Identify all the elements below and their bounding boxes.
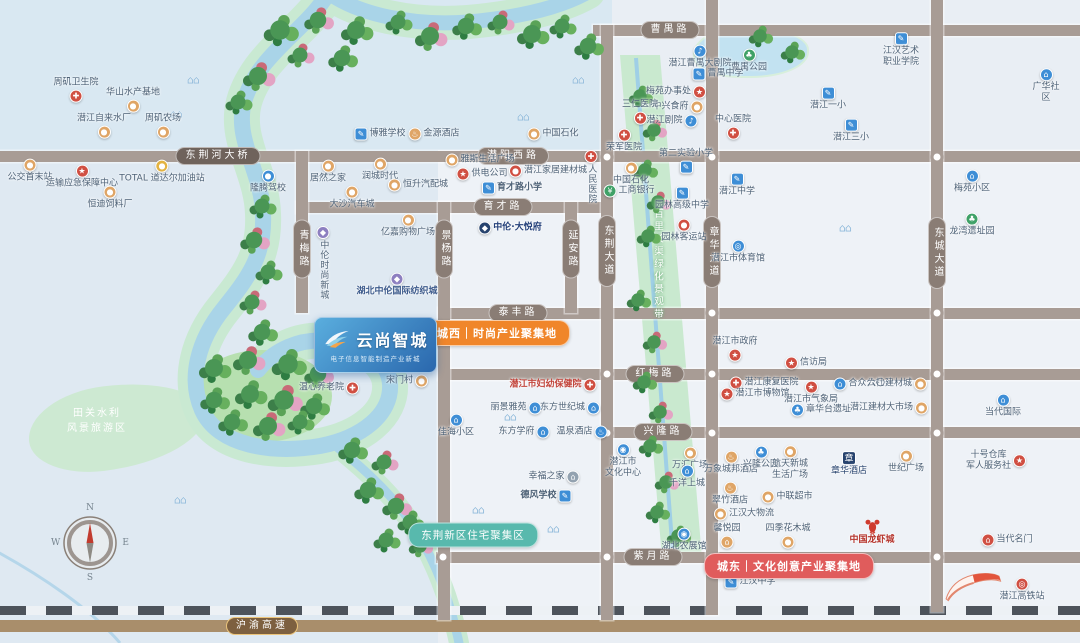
scenic-area-label: 田关水利 风景旅游区	[67, 406, 127, 436]
high-speed-train-illustration	[942, 567, 1003, 607]
brand-bird-icon	[322, 328, 352, 350]
shop-icon: ●	[914, 378, 927, 391]
school-icon: ✎	[844, 119, 857, 132]
shop-icon: ●	[103, 186, 116, 199]
tree-cluster	[270, 20, 290, 40]
bus-icon: ●	[677, 219, 690, 232]
poi: 温心养老院✚	[299, 382, 359, 395]
poi: ⌂梅苑小区	[954, 170, 990, 195]
tree-cluster	[347, 21, 365, 39]
shop-icon: ●	[761, 491, 774, 504]
poi: ✚荣军医院	[606, 129, 642, 154]
poi-label: 供电公司	[471, 169, 507, 180]
poi: 东方世纪城⌂	[540, 402, 600, 415]
poi: ●园林客运站	[661, 219, 706, 244]
poi-label: 恒升汽配城	[403, 180, 448, 191]
hotel-icon: ♨	[723, 482, 736, 495]
buildings-icon: ⌂⌂	[517, 111, 529, 124]
poi: 章章华酒店	[831, 451, 867, 477]
highway-road	[0, 620, 1080, 632]
gov-icon: ★	[720, 388, 733, 401]
project-name: 云尚智城	[356, 327, 428, 351]
hotel-icon: ♨	[724, 451, 737, 464]
road-name-label: 兴隆路	[634, 423, 693, 441]
theater-icon: ♪	[693, 45, 706, 58]
hospital-icon: ✚	[585, 150, 598, 163]
poi-label: 工商银行	[618, 186, 654, 197]
home-icon: ⌂	[720, 535, 733, 548]
poi-label: 温泉酒店	[556, 427, 592, 438]
poi: ♪潜江曹禺大剧院	[668, 45, 731, 70]
poi: ●大沙汽车城	[329, 186, 374, 211]
tree-cluster	[388, 498, 405, 515]
tree-cluster	[643, 439, 657, 453]
banner-residential-area: 东荆新区住宅聚集区	[408, 523, 538, 548]
brand-icon: ◆	[390, 273, 403, 286]
road	[601, 25, 613, 620]
location-map: 田关水利 风景旅游区 百里长渠绿化景观带 城西｜时尚产业聚集地 城东｜文化创意产…	[0, 0, 1080, 643]
tree-cluster	[379, 533, 394, 548]
poi-label: 中心医院	[715, 115, 751, 126]
poi: ●中国石化	[613, 162, 649, 187]
poi-label: 园林高级中学	[655, 201, 709, 212]
poi: ¥工商银行	[603, 185, 654, 198]
hospital-icon: ✚	[69, 89, 82, 102]
tree-cluster	[255, 199, 270, 214]
poi-label: 东方学府	[498, 427, 534, 438]
poi-label: 潜江建材大市场	[850, 403, 913, 414]
tree-cluster	[653, 405, 667, 419]
poi-label: 周矶卫生院	[53, 78, 98, 89]
tree-cluster	[249, 67, 267, 85]
poi-label: 育才路小学	[497, 183, 542, 194]
poi: ●居然之家	[310, 160, 346, 185]
home-icon: ⌂	[449, 414, 462, 427]
poi: ◉潜江市 文化中心	[605, 443, 641, 479]
road-junction	[931, 427, 944, 440]
gov-icon: ★	[75, 165, 88, 178]
poi-label: 信访局	[800, 358, 827, 369]
poi: ⌂广华社区	[1029, 68, 1063, 104]
poi: ✎曹禺中学	[692, 68, 743, 81]
poi-label: 江汉大物流	[729, 509, 774, 520]
railway-line	[0, 606, 1080, 615]
poi: ◉湖北农展馆	[661, 528, 706, 553]
banner-east-industry: 城东｜文化创意产业聚集地	[704, 553, 874, 579]
tree-cluster	[391, 15, 406, 30]
buildings-icon: ⌂⌂	[839, 222, 851, 235]
poi-label: 幸福之家	[528, 472, 564, 483]
poi-label: 潜江自来水厂	[77, 114, 131, 125]
culture-icon: ◉	[616, 443, 629, 456]
poi-label: 华山水产基地	[106, 88, 160, 99]
school-icon: ✎	[730, 173, 743, 186]
bus-icon: ●	[23, 159, 36, 172]
shop-icon: ●	[783, 445, 796, 458]
tree-cluster	[523, 25, 541, 43]
road-junction	[931, 151, 944, 164]
poi: 丽景雅苑⌂	[490, 402, 541, 415]
poi: ◆湖北中伦国际纺织城	[356, 273, 437, 298]
poi-label: 第二实验小学	[659, 149, 713, 160]
gov-icon: ★	[456, 168, 469, 181]
poi: ●航天新城 生活广场	[772, 445, 808, 481]
poi: 中国龙虾城	[849, 518, 894, 546]
poi: ♨金源酒店	[408, 128, 459, 141]
poi: 潜江建材大市场●	[850, 402, 928, 415]
poi: ✎潜江中学	[719, 173, 755, 198]
home-icon: ⌂	[587, 402, 600, 415]
poi: ●TOTAL 道达尔加油站	[119, 160, 204, 185]
shop-icon: ●	[388, 179, 401, 192]
poi-label: 居然之家	[310, 174, 346, 185]
poi: ◆中伦时尚新城	[317, 226, 330, 300]
gov-icon: ★	[693, 86, 706, 99]
road-junction	[601, 551, 614, 564]
poi: 十号仓库 军人服务社★	[966, 450, 1026, 472]
poi-label: 潜江三小	[833, 133, 869, 144]
poi-label: 世纪广场	[888, 464, 924, 475]
tree-cluster	[785, 45, 799, 59]
poi-label: 潜江市 文化中心	[605, 457, 641, 479]
road-name-label: 延安路	[562, 220, 580, 279]
poi-label: 当代名门	[996, 535, 1032, 546]
gov-icon: ★	[1013, 455, 1026, 468]
school-icon: ✎	[821, 87, 834, 100]
poi: ⌂佳海小区	[438, 414, 474, 439]
school-icon: ✎	[559, 490, 572, 503]
poi: ●中联超市	[761, 491, 812, 504]
fuel-icon: ●	[624, 162, 637, 175]
poi-label: 馨悦园	[713, 524, 740, 535]
home-icon: ⌂	[981, 534, 994, 547]
poi-label: 梅苑办事处	[646, 87, 691, 98]
poi: ✎育才路小学	[482, 182, 542, 195]
road-name-label: 育才路	[474, 198, 533, 216]
poi-label: 大沙汽车城	[329, 200, 374, 211]
tree-cluster	[647, 335, 661, 349]
poi: ♣章华台遗址	[791, 404, 851, 417]
road-junction	[437, 551, 450, 564]
shop-icon: ●	[345, 186, 358, 199]
poi-label: 龙湾遗址园	[949, 227, 994, 238]
tree-cluster	[637, 375, 651, 389]
poi-label: 十号仓库 军人服务社	[966, 450, 1011, 472]
poi-label: 潜江高铁站	[999, 592, 1044, 603]
poi-label: 江汉艺术 职业学院	[883, 46, 919, 68]
park-icon: ♣	[965, 213, 978, 226]
school-icon: ✎	[675, 187, 688, 200]
poi-label: 宋门村	[386, 376, 413, 387]
poi: ⌂当代名门	[981, 534, 1032, 547]
poi-label: 四季花木城	[765, 524, 810, 535]
poi: ◆中伦·大悦府	[478, 222, 541, 235]
poi: 周矶卫生院✚	[53, 78, 98, 103]
school-icon: ✎	[679, 160, 692, 173]
road-name-label: 东荆大道	[598, 215, 616, 287]
compass-south-label: S	[87, 573, 93, 583]
poi-label: 潜江一小	[810, 101, 846, 112]
poi: ◎潜江高铁站	[999, 578, 1044, 603]
tree-cluster	[246, 232, 263, 249]
tree-cluster	[306, 398, 323, 415]
poi-label: 曹禺中学	[707, 69, 743, 80]
poi: ✚人民医院	[585, 150, 598, 204]
tree-cluster	[274, 390, 294, 410]
poi: ★供电公司	[456, 168, 507, 181]
poi-label: 湖北中伦国际纺织城	[356, 287, 437, 298]
poi: ●恒迪饲料厂	[87, 186, 132, 211]
tree-cluster	[753, 29, 767, 43]
road-name-label: 青梅路	[293, 220, 311, 279]
road-junction	[931, 551, 944, 564]
poi: ●中国石化	[527, 128, 578, 141]
poi: ♣龙湾遗址园	[949, 213, 994, 238]
compass-north-label: N	[86, 503, 94, 513]
poi: ♨翠竹酒店	[712, 482, 748, 507]
poi: 潜江市妇幼保健院✚	[509, 379, 596, 392]
park-icon: ♣	[754, 446, 767, 459]
poi: 德风学校✎	[520, 490, 571, 503]
tree-cluster	[205, 359, 223, 377]
poi-label: 园林客运站	[661, 233, 706, 244]
tree-cluster	[493, 15, 508, 30]
poi: 三仁医院✚	[622, 100, 658, 125]
tree-cluster	[278, 354, 298, 374]
hotel-icon: ♨	[595, 426, 608, 439]
buildings-icon: ⌂⌂	[472, 504, 484, 517]
buildings-icon: ⌂⌂	[547, 523, 559, 536]
hospital-icon: ✚	[584, 379, 597, 392]
poi-label: 中伦·大悦府	[493, 223, 541, 234]
road-junction	[931, 307, 944, 320]
hospital-icon: ✚	[726, 126, 739, 139]
poi: 华山水产基地●	[106, 88, 160, 113]
compass-west-label: W	[51, 538, 60, 548]
tree-cluster	[580, 38, 597, 55]
poi-label: 梅苑小区	[954, 184, 990, 195]
poi: 东方学府⌂	[498, 426, 549, 439]
poi-label: 雅斯生活广场	[460, 155, 514, 166]
home-icon: ⌂	[567, 471, 580, 484]
poi: ★信访局	[785, 357, 827, 370]
shop-icon: ●	[714, 508, 727, 521]
home-icon: ⌂	[996, 394, 1009, 407]
poi-label: 中伦时尚新城	[318, 240, 329, 300]
shop-icon: ●	[97, 125, 110, 138]
school-icon: ✎	[354, 128, 367, 141]
shop-icon: ●	[691, 101, 704, 114]
poi: 中兴食府●	[652, 101, 703, 114]
poi: ●江汉大物流	[714, 508, 774, 521]
poi-label: 佳海小区	[438, 428, 474, 439]
poi-label: 东方世纪城	[540, 403, 585, 414]
poi: ★潜江市博物馆	[720, 388, 789, 401]
poi-label: 章华酒店	[831, 466, 867, 477]
poi: ★潜江市气象局	[784, 381, 838, 406]
home-icon: ⌂	[965, 170, 978, 183]
poi: 梅苑办事处★	[646, 86, 706, 99]
brand-icon: ◆	[317, 226, 330, 239]
road-junction	[706, 427, 719, 440]
compass-east-label: E	[122, 538, 129, 548]
poi: ●雅斯生活广场	[445, 154, 514, 167]
road-name-label: 红梅路	[626, 365, 685, 383]
shop-icon: ●	[401, 214, 414, 227]
poi: 第二实验小学✎	[659, 149, 713, 174]
gov-icon: ★	[785, 357, 798, 370]
lobster-icon	[863, 518, 881, 534]
poi: ✎园林高级中学	[655, 187, 709, 212]
poi-label: 潜江市政府	[712, 337, 757, 348]
poi-label: 航天新城 生活广场	[772, 459, 808, 481]
shop-icon: ●	[415, 375, 428, 388]
home-icon: ⌂	[1040, 68, 1053, 81]
poi: 幸福之家⌂	[528, 471, 579, 484]
tree-cluster	[259, 417, 277, 435]
poi-label: TOTAL 道达尔加油站	[119, 174, 204, 185]
poi-label: 德风学校	[520, 491, 556, 502]
buildings-icon: ⌂⌂	[174, 494, 186, 507]
road-name-label: 东城大道	[928, 217, 946, 289]
school-icon: ✎	[482, 182, 495, 195]
poi-label: 人民医院	[586, 164, 597, 204]
tree-cluster	[344, 442, 361, 459]
shop-icon: ●	[509, 165, 522, 178]
poi-label: 翠竹酒店	[712, 496, 748, 507]
poi: ✎博雅学校	[354, 128, 405, 141]
project-tagline: 电子信息智能制造产业新城	[331, 353, 421, 363]
hospital-icon: ✚	[617, 129, 630, 142]
tree-cluster	[334, 50, 351, 67]
poi: ✎江汉艺术 职业学院	[883, 32, 919, 68]
park-icon: ♣	[791, 404, 804, 417]
tree-cluster	[641, 229, 655, 243]
tree-cluster	[377, 455, 392, 470]
poi: 四季花木城●	[765, 524, 810, 549]
highway-name-label: 沪渝高速	[226, 617, 298, 635]
poi: ●恒升汽配城	[388, 179, 448, 192]
poi-label: 荣军医院	[606, 143, 642, 154]
shop-icon: ●	[445, 154, 458, 167]
hotel-icon: ♨	[408, 128, 421, 141]
tree-cluster	[254, 324, 271, 341]
home-icon: ⌂	[680, 465, 693, 478]
tree-cluster	[555, 19, 570, 34]
tree-cluster	[293, 48, 308, 63]
poi-label: 章华台遗址	[806, 405, 851, 416]
poi: ●潜江家居建材城	[509, 165, 587, 178]
road-name-label: 曹禺路	[641, 21, 700, 39]
poi-label: 温心养老院	[299, 383, 344, 394]
tree-cluster	[224, 414, 241, 431]
poi-label: 潜江市博物馆	[735, 389, 789, 400]
poi: ◎潜江市体育馆	[711, 240, 765, 265]
bank-icon: ¥	[603, 185, 616, 198]
rail-icon: ◎	[1015, 578, 1028, 591]
poi-label: 中联超市	[776, 492, 812, 503]
poi: 宋门村●	[386, 375, 428, 388]
hospital-icon: ✚	[633, 111, 646, 124]
poi: 周矶农场●	[145, 114, 181, 139]
road-junction	[706, 368, 719, 381]
tree-cluster	[245, 295, 260, 310]
poi-label: 丽景雅苑	[490, 403, 526, 414]
compass-dial-icon	[62, 515, 118, 571]
tree-cluster	[421, 27, 439, 45]
hospital-icon: ✚	[346, 382, 359, 395]
poi: 温泉酒店♨	[556, 426, 607, 439]
poi: ✎潜江一小	[810, 87, 846, 112]
poi: ●隆腾驾校	[250, 170, 286, 195]
poi-label: 金源酒店	[423, 129, 459, 140]
buildings-icon: ⌂⌂	[572, 74, 584, 87]
compass: N S W E	[62, 515, 118, 571]
poi-label: 中国龙虾城	[849, 535, 894, 546]
poi-label: 广华社区	[1029, 82, 1063, 104]
poi: 潜江自来水厂●	[77, 114, 131, 139]
poi-label: 中国石化	[542, 129, 578, 140]
road-junction	[601, 368, 614, 381]
project-logo-card: 云尚智城 电子信息智能制造产业新城	[314, 317, 437, 373]
tree-cluster	[458, 18, 475, 35]
poi-label: 潜江市妇幼保健院	[509, 380, 581, 391]
poi: 六〇建材城●	[867, 378, 927, 391]
tree-cluster	[206, 392, 223, 409]
shop-icon: ●	[156, 125, 169, 138]
gov-icon: ★	[728, 348, 741, 361]
hotel-seal-icon: 章	[842, 451, 856, 465]
tree-cluster	[293, 415, 308, 430]
poi-label: 三仁医院	[622, 100, 658, 111]
park-icon: ♣	[742, 49, 755, 62]
tree-cluster	[650, 505, 664, 519]
poi-label: 恒迪饲料厂	[87, 200, 132, 211]
tree-cluster	[631, 293, 645, 307]
poi: ⌂千洋上城	[669, 465, 705, 490]
home-icon: ⌂	[537, 426, 550, 439]
theater-icon: ♪	[685, 115, 698, 128]
poi-label: 潜江市体育馆	[711, 254, 765, 265]
fuel-icon: ●	[155, 160, 168, 173]
tree-cluster	[239, 351, 257, 369]
shop-icon: ●	[126, 99, 139, 112]
gov-icon: ★	[804, 381, 817, 394]
road-junction	[931, 368, 944, 381]
tree-cluster	[310, 12, 327, 29]
poi: ✎潜江三小	[833, 119, 869, 144]
poi-label: 千洋上城	[669, 479, 705, 490]
poi-label: 潜江家居建材城	[524, 166, 587, 177]
shop-icon: ●	[683, 447, 696, 460]
poi: 馨悦园⌂	[713, 524, 740, 549]
poi-label: 周矶农场	[145, 114, 181, 125]
car-icon: ●	[261, 170, 274, 183]
fuel-icon: ●	[527, 128, 540, 141]
culture-icon: ◉	[677, 528, 690, 541]
poi: ●亿嘉购物广场	[381, 214, 435, 239]
buildings-icon: ⌂⌂	[187, 74, 199, 87]
tree-cluster	[231, 95, 246, 110]
poi-label: 亿嘉购物广场	[381, 228, 435, 239]
poi-label: 隆腾驾校	[250, 184, 286, 195]
poi-label: 湖北农展馆	[661, 542, 706, 553]
shop-icon: ●	[899, 450, 912, 463]
poi-label: 博雅学校	[369, 129, 405, 140]
poi: 潜江市政府★	[712, 337, 757, 362]
road-name-label: 景杨路	[435, 220, 453, 279]
poi-label: 当代国际	[985, 408, 1021, 419]
